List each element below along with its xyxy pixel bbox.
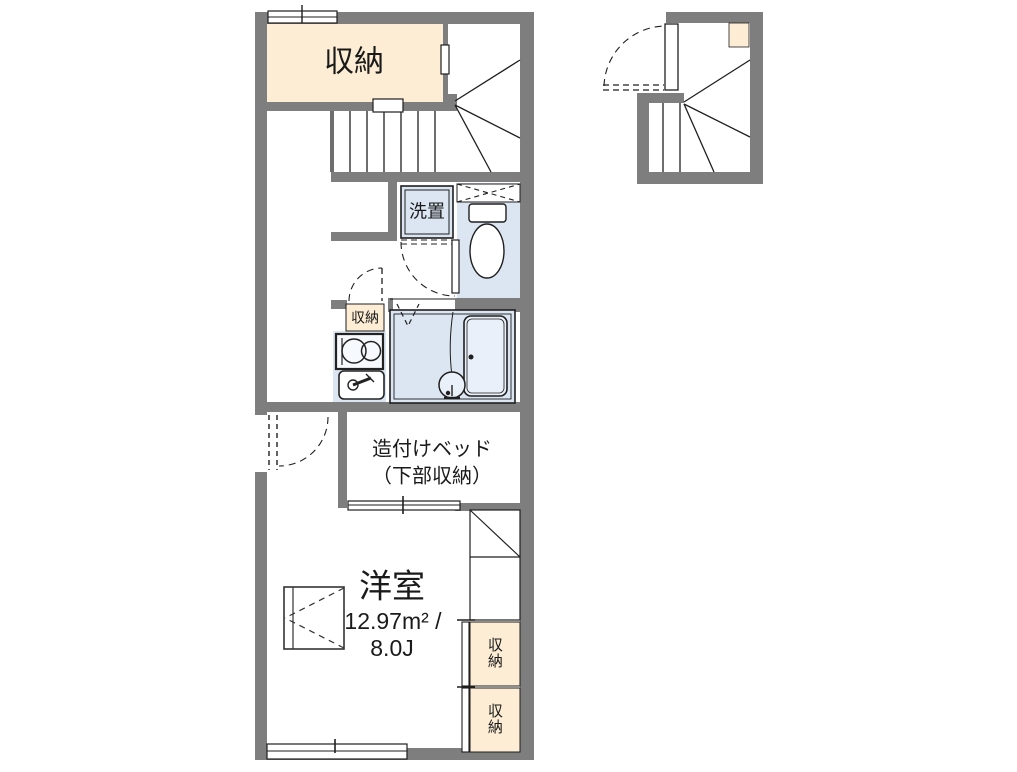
casement-window-icon bbox=[284, 587, 344, 649]
closet-top-label: 収納 bbox=[324, 46, 384, 78]
main-room-size: 8.0J bbox=[370, 636, 413, 660]
wall-kitchen-door-stub bbox=[331, 300, 347, 309]
wall-right bbox=[520, 12, 534, 760]
main-room-area: 12.97m² / bbox=[344, 609, 441, 633]
wall-bed-left bbox=[338, 412, 347, 508]
closet-top-door bbox=[373, 99, 403, 112]
right-closet-upper-label: 収納 bbox=[486, 637, 502, 669]
stove-icon bbox=[336, 334, 383, 369]
toilet-vent-window bbox=[457, 184, 520, 202]
right-closet-upper-door bbox=[462, 622, 469, 686]
entry-door-opening bbox=[255, 415, 267, 472]
wall-pocket-bottom bbox=[331, 232, 397, 241]
right-closet-lower-door bbox=[462, 688, 469, 752]
washer-space-label: 洗置 bbox=[409, 203, 445, 222]
entry-door-swing bbox=[255, 415, 328, 472]
bathroom bbox=[390, 304, 515, 403]
wall-stair-bottom bbox=[331, 172, 520, 182]
detail-entry-door bbox=[603, 24, 678, 90]
toilet-door bbox=[401, 240, 459, 296]
detail-closet-box bbox=[729, 23, 749, 47]
main-room-name: 洋室 bbox=[359, 570, 425, 605]
wall-left bbox=[255, 12, 267, 760]
window-top bbox=[268, 5, 337, 23]
kitchen-closet-label: 収納 bbox=[351, 311, 379, 326]
bathtub-icon bbox=[464, 316, 507, 396]
floor-plan-canvas: 収納 洗置 収納 造付けベッド （下部収納） 洋室 12.97m² / 8.0J… bbox=[0, 0, 1017, 772]
floor-plan-drawing bbox=[0, 0, 1017, 772]
bed-label-line1: 造付けベッド bbox=[372, 440, 492, 461]
window-bottom bbox=[267, 739, 407, 759]
wall-closet-bottom bbox=[267, 102, 447, 111]
window-bed-bottom bbox=[348, 496, 460, 514]
closet-side-door bbox=[441, 45, 449, 74]
kitchen-door-swing bbox=[349, 268, 382, 301]
sink-icon bbox=[339, 371, 384, 399]
right-void-box bbox=[470, 510, 520, 620]
toilet-icon bbox=[469, 204, 506, 278]
bath-drain-icon bbox=[439, 372, 465, 398]
bed-label-line2: （下部収納） bbox=[372, 467, 492, 488]
wall-winder-stub bbox=[443, 94, 457, 111]
staircase-detail-plan bbox=[603, 12, 763, 184]
right-closet-lower-label: 収納 bbox=[486, 703, 502, 735]
